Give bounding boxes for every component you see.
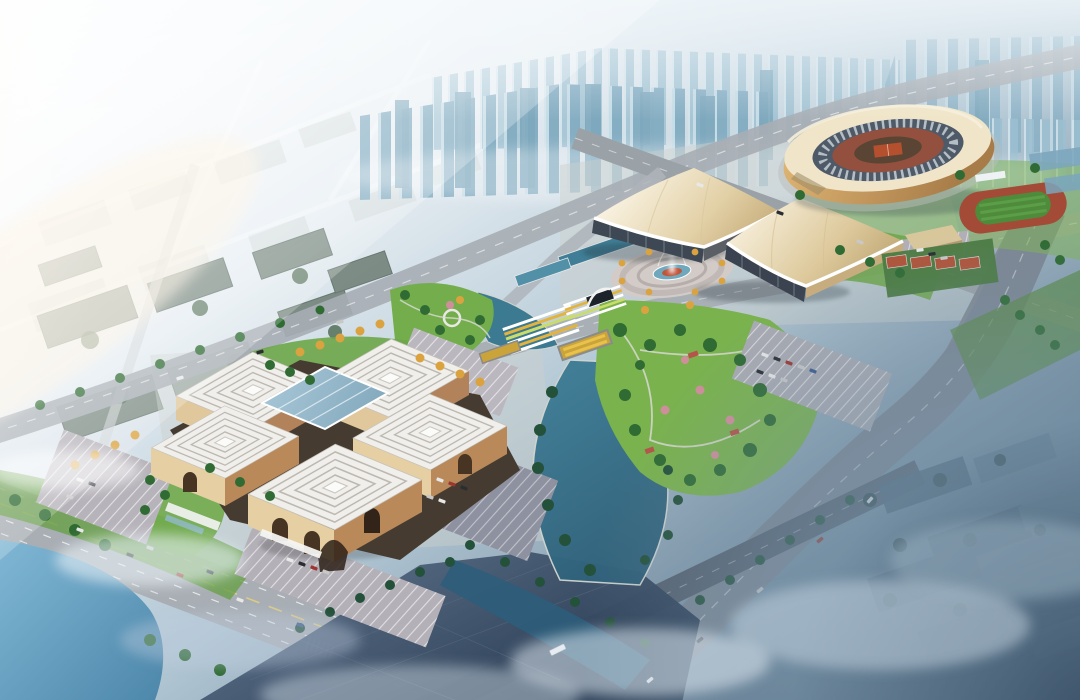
aerial-rendering xyxy=(0,0,1080,700)
